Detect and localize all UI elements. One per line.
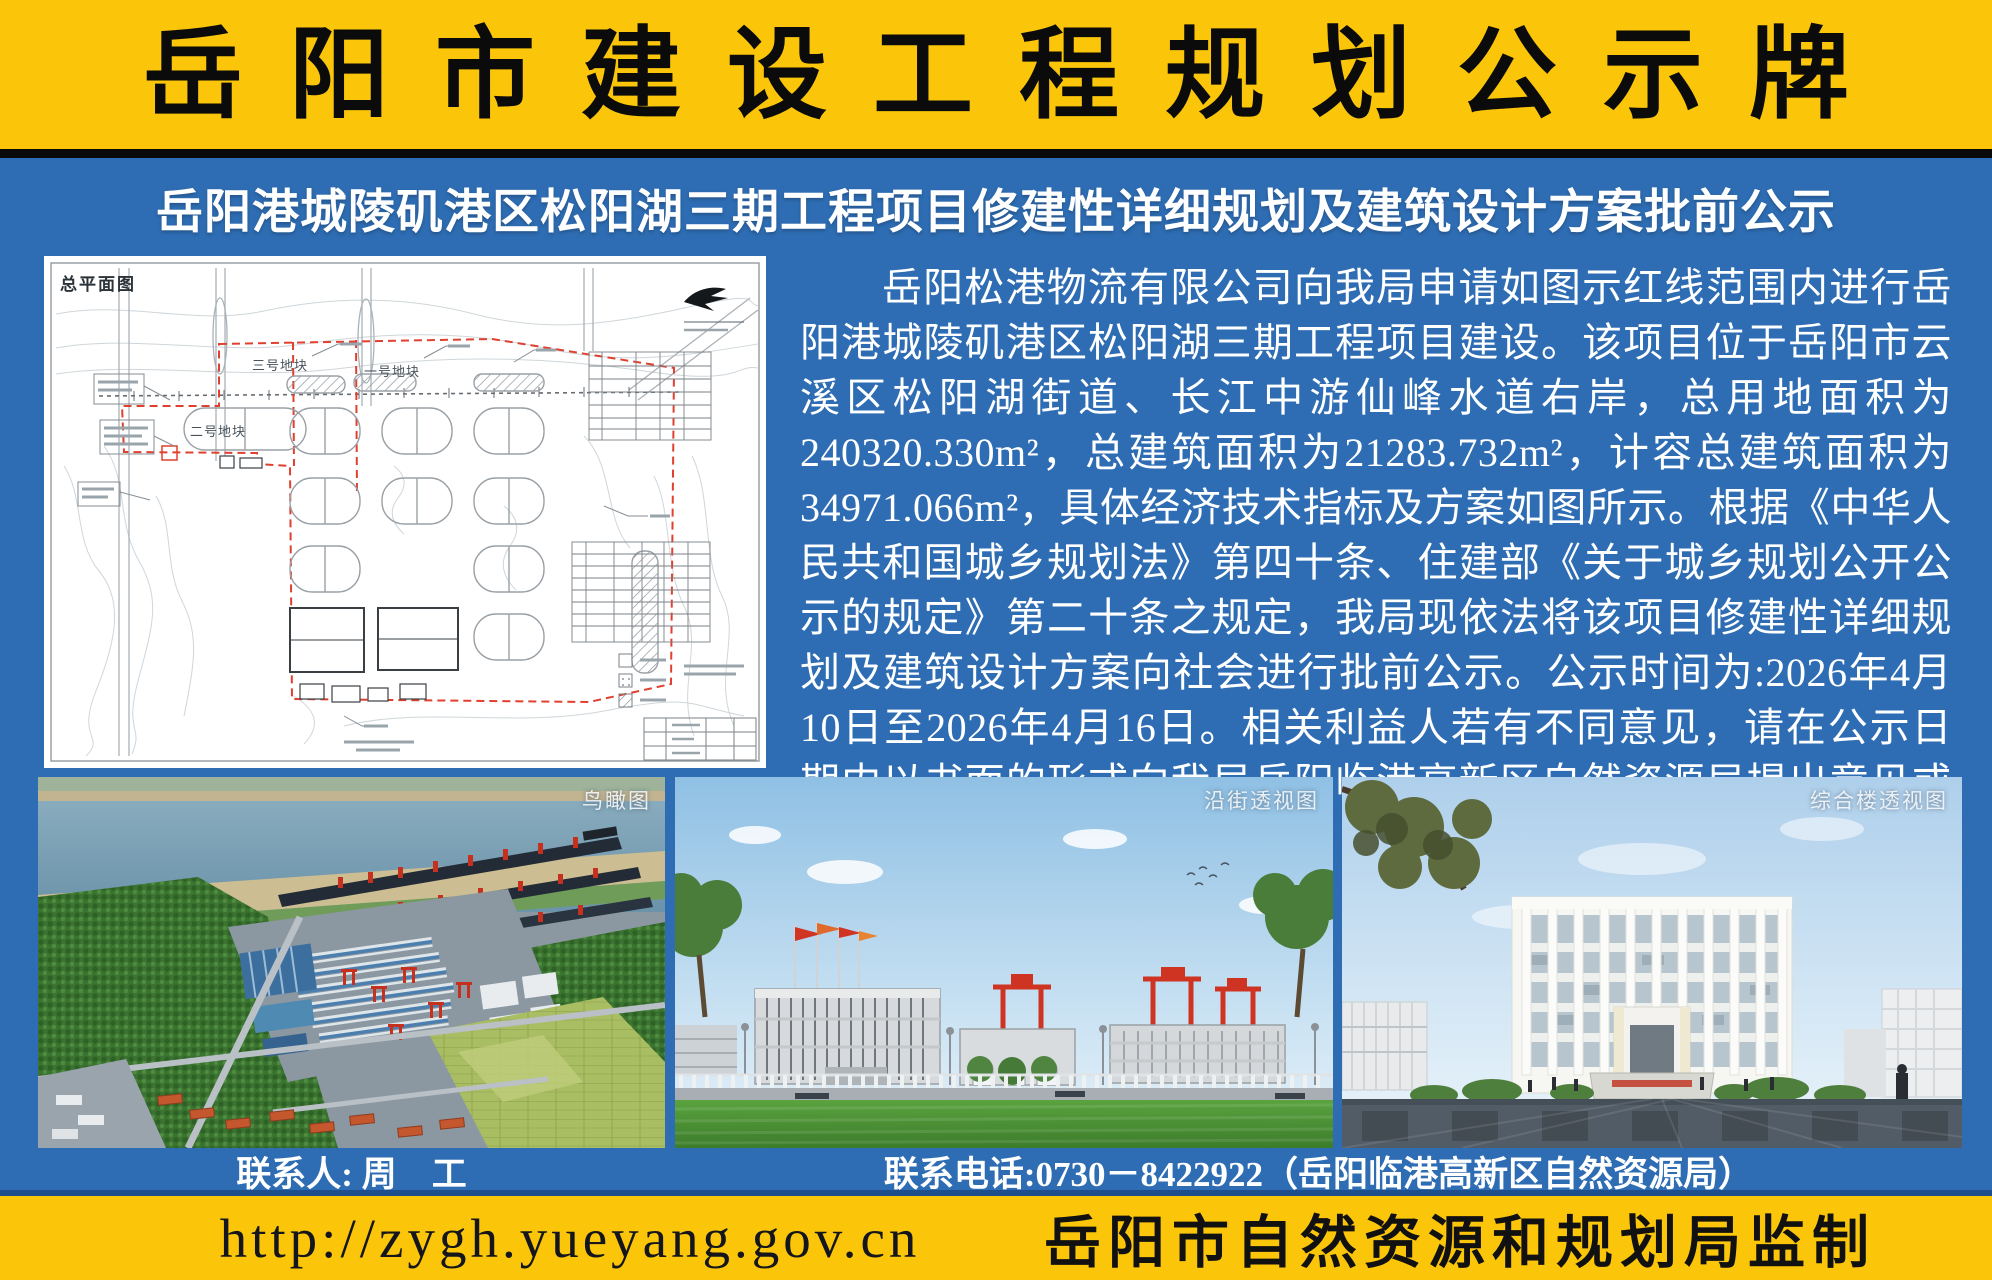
street-render-image — [675, 777, 1333, 1148]
aerial-render: 鸟瞰图 — [38, 777, 665, 1148]
site-plan-title: 总平面图 — [60, 274, 136, 294]
entrance-sign — [1590, 1073, 1714, 1099]
project-subtitle: 岳阳港城陵矶港区松阳湖三期工程项目修建性详细规划及建筑设计方案批前公示 — [0, 158, 1992, 256]
aerial-render-label: 鸟瞰图 — [582, 785, 651, 815]
parcel-label-2: 二号地块 — [190, 424, 246, 439]
tower-render-label: 综合楼透视图 — [1810, 785, 1948, 815]
footer-url: http://zygh.yueyang.gov.cn — [130, 1196, 1010, 1280]
parcel-label-3: 三号地块 — [252, 358, 308, 373]
street-render: 沿街透视图 — [675, 777, 1333, 1148]
site-plan-panel: 总平面图 三号地块 一号地块 二号地块 — [44, 256, 766, 768]
distant-building — [675, 1025, 737, 1075]
notice-paragraph: 岳阳松港物流有限公司向我局申请如图示红线范围内进行岳阳港城陵矶港区松阳湖三期工程… — [800, 260, 1952, 760]
plaza — [1342, 1099, 1962, 1148]
aerial-render-image — [38, 777, 665, 1148]
street-render-label: 沿街透视图 — [1204, 785, 1319, 815]
office-tower — [1512, 897, 1792, 1094]
tower-render: 综合楼透视图 — [1342, 777, 1962, 1148]
site-plan-drawing: 总平面图 三号地块 一号地块 二号地块 — [44, 256, 766, 768]
contact-person: 联系人: 周 工 — [38, 1150, 665, 1192]
footer-supervisor: 岳阳市自然资源和规划局监制 — [1010, 1196, 1910, 1280]
banner-divider — [0, 149, 1992, 158]
notice-board: 岳阳市建设工程规划公示牌 岳阳港城陵矶港区松阳湖三期工程项目修建性详细规划及建筑… — [0, 0, 1992, 1280]
footer: http://zygh.yueyang.gov.cn 岳阳市自然资源和规划局监制 — [0, 1196, 1992, 1280]
tower-render-image — [1342, 777, 1962, 1148]
road-strip — [675, 1088, 1333, 1100]
banner-title: 岳阳市建设工程规划公示牌 — [97, 25, 1895, 125]
banner: 岳阳市建设工程规划公示牌 — [0, 0, 1992, 149]
contact-phone: 联系电话:0730－8422922（岳阳临港高新区自然资源局） — [675, 1150, 1962, 1192]
parcel-label-1: 一号地块 — [364, 364, 420, 379]
